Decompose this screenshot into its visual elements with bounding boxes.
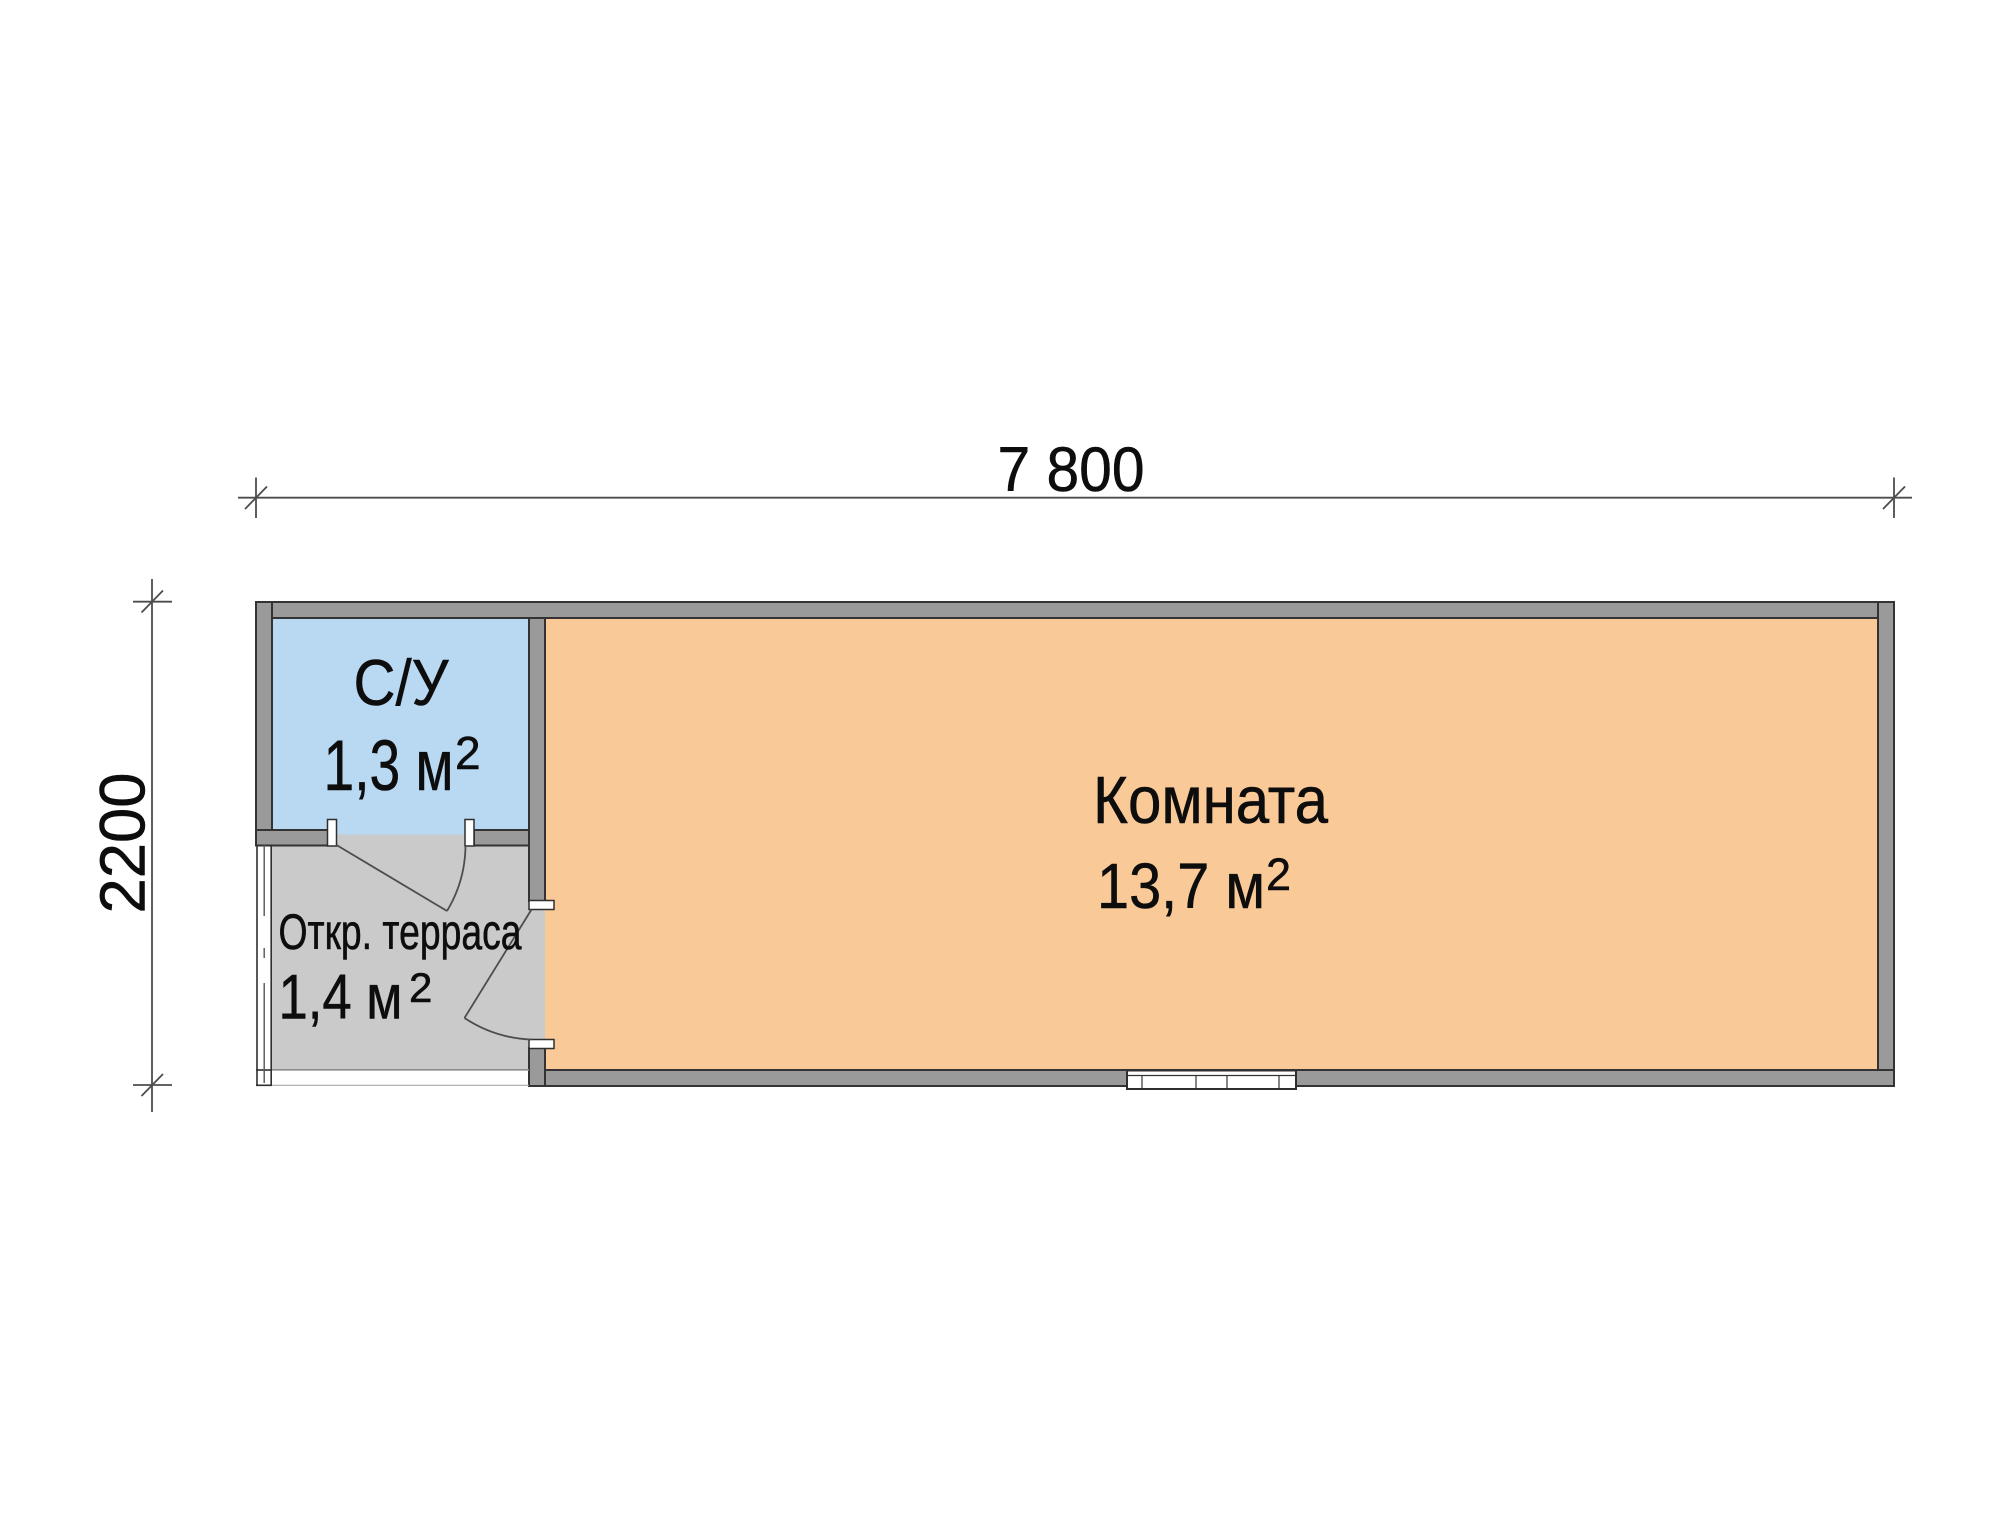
svg-text:1,4 м: 1,4 м	[279, 963, 403, 1033]
svg-text:2: 2	[455, 727, 481, 779]
svg-text:13,7 м: 13,7 м	[1097, 850, 1265, 922]
svg-text:С/У: С/У	[354, 646, 450, 719]
svg-text:2: 2	[1266, 849, 1291, 900]
svg-text:1,3 м: 1,3 м	[324, 727, 454, 806]
svg-text:7 800: 7 800	[998, 435, 1145, 505]
svg-text:2200: 2200	[87, 773, 159, 914]
svg-text:Комната: Комната	[1093, 763, 1329, 838]
svg-text:Откр. терраса: Откр. терраса	[279, 904, 522, 960]
svg-text:2: 2	[409, 964, 432, 1011]
